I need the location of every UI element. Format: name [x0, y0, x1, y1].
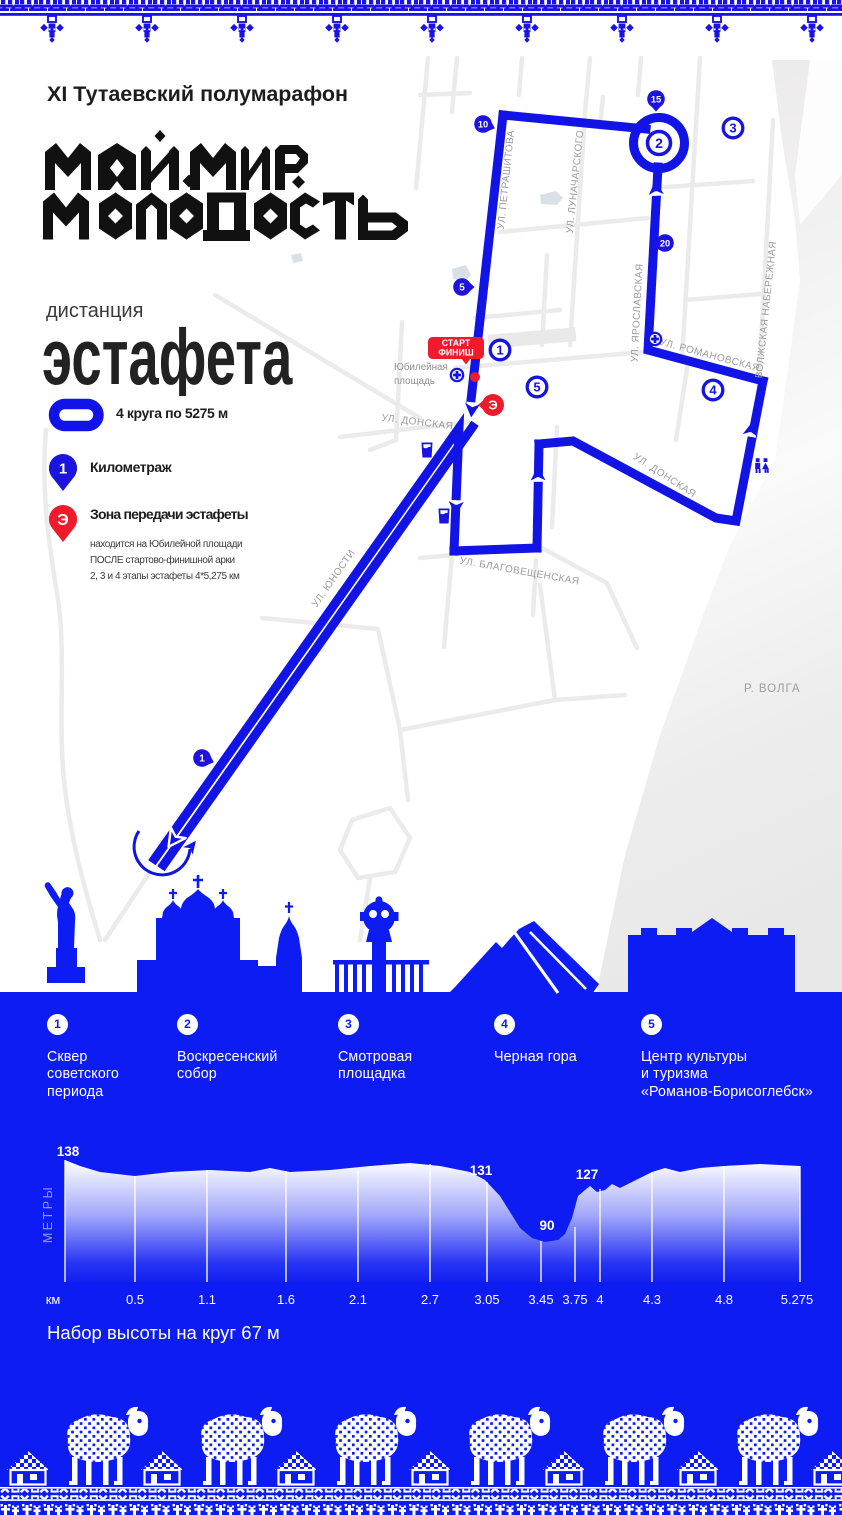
svg-text:ФИНИШ: ФИНИШ	[438, 348, 474, 358]
svg-text:УЛ. ЛУНАЧАРСКОГО: УЛ. ЛУНАЧАРСКОГО	[565, 130, 587, 234]
svg-text:ВОЛЖСКАЯ НАБЕРЕЖНАЯ: ВОЛЖСКАЯ НАБЕРЕЖНАЯ	[754, 241, 779, 379]
svg-text:УЛ. ЯРОСЛАВСКАЯ: УЛ. ЯРОСЛАВСКАЯ	[629, 263, 645, 362]
svg-text:131: 131	[470, 1163, 493, 1178]
svg-text:УЛ. ДОНСКАЯ: УЛ. ДОНСКАЯ	[381, 413, 454, 433]
svg-text:4: 4	[709, 383, 717, 398]
svg-text:127: 127	[576, 1167, 599, 1182]
svg-text:15: 15	[651, 95, 661, 105]
svg-text:3: 3	[729, 121, 736, 136]
svg-text:20: 20	[660, 239, 670, 249]
svg-text:138: 138	[57, 1144, 80, 1159]
svg-text:Э: Э	[488, 398, 497, 413]
svg-text:площадь: площадь	[394, 376, 435, 387]
svg-text:СТАРТ: СТАРТ	[442, 338, 471, 348]
svg-text:УЛ. БЛАГОВЕЩЕНСКАЯ: УЛ. БЛАГОВЕЩЕНСКАЯ	[459, 556, 580, 588]
svg-text:90: 90	[539, 1218, 554, 1233]
svg-text:1: 1	[199, 754, 205, 765]
svg-text:5: 5	[533, 380, 540, 395]
svg-text:5: 5	[459, 283, 465, 294]
svg-text:МЕТРЫ: МЕТРЫ	[41, 1185, 55, 1243]
svg-text:2: 2	[655, 135, 663, 151]
svg-text:Р. ВОЛГА: Р. ВОЛГА	[744, 683, 801, 695]
svg-text:10: 10	[478, 120, 488, 130]
svg-text:Юбилейная: Юбилейная	[394, 362, 448, 373]
svg-text:1: 1	[496, 343, 503, 358]
